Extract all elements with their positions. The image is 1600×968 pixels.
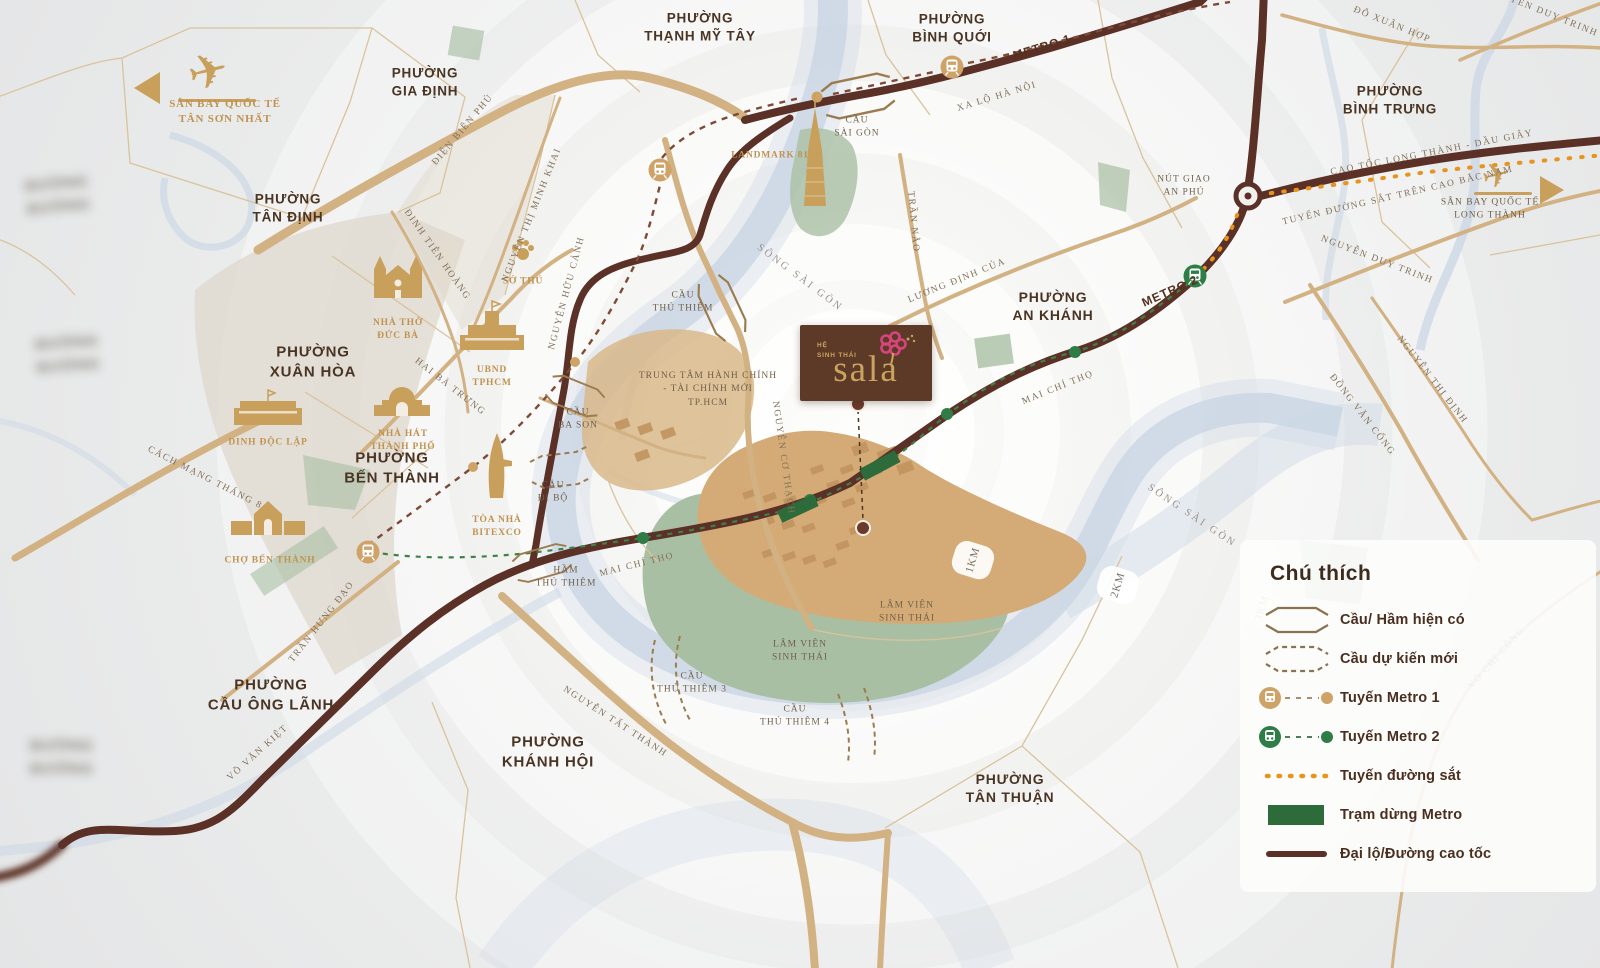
- landmark-label-nha-hat-thanh-pho: NHÀ HÁTTHÀNH PHỐ: [371, 428, 436, 454]
- metro2-line-icon: [1254, 723, 1340, 751]
- road-label-nguyen-duy-trinh-2: NGUYỄN DUY TRINH: [1485, 0, 1600, 39]
- road-label-mai-chi-tho-1: MAI CHÍ THỌ: [599, 551, 676, 579]
- legend-card: Chú thích Cầu/ Hầm hiện có Cầu dự kiến m…: [1240, 540, 1596, 892]
- legend-item-metro-station: Trạm dừng Metro: [1240, 795, 1596, 834]
- district-label-gia-dinh: PHƯỜNGGIA ĐỊNH: [392, 64, 459, 99]
- road-label-nguyen-thi-minh-khai: NGUYỄN THỊ MINH KHAI: [500, 146, 563, 283]
- river-label-song-sai-gon-1: SÔNG SÀI GÒN: [755, 242, 845, 314]
- ring-label-ring-1km: 1KM: [949, 538, 997, 582]
- district-label-tan-dinh: PHƯỜNGTÂN ĐỊNH: [253, 190, 324, 225]
- district-label-tan-thuan: PHƯỜNGTÂN THUẬN: [966, 770, 1055, 806]
- bridge-planned-icon: [1254, 641, 1340, 677]
- landmark-label-landmark-81: LANDMARK 81: [731, 150, 809, 163]
- road-label-xa-lo-ha-noi: XA LỘ HÀ NỘI: [956, 80, 1038, 114]
- road-label-dong-van-cong: ĐỒNG VĂN CỐNG: [1327, 372, 1397, 457]
- landmark-label-dinh-doc-lap: DINH ĐỘC LẬP: [228, 437, 307, 450]
- road-label-nguyen-tat-thanh: NGUYỄN TẤT THÀNH: [561, 685, 668, 760]
- place-label-trung-tam-hanh-chinh: TRUNG TÂM HÀNH CHÍNH- TÀI CHÍNH MỚITP.HC…: [639, 370, 777, 410]
- district-label-xuan-hoa: PHƯỜNGXUÂN HÒA: [270, 343, 356, 382]
- road-label-mai-chi-tho-2: MAI CHÍ THỌ: [1021, 369, 1096, 407]
- road-label-vo-van-kiet: VÕ VĂN KIỆT: [226, 723, 291, 783]
- metro-line-label-metro-2: METRO 2: [1140, 272, 1201, 309]
- road-label-dinh-tien-hoang: ĐINH TIÊN HOÀNG: [402, 208, 472, 302]
- road-label-luong-dinh-cua: LƯƠNG ĐỊNH CỦA: [907, 257, 1008, 306]
- river-label-song-sai-gon-2: SÔNG SÀI GÒN: [1146, 482, 1239, 550]
- place-label-san-bay-long-thanh: SÂN BAY QUỐC TẾLONG THÀNH: [1441, 197, 1539, 224]
- road-label-cach-mang-thang-8: CÁCH MẠNG THÁNG 8: [146, 445, 264, 512]
- ring-label-ring-2km: 2KM: [1094, 563, 1142, 607]
- landmark-label-nha-tho-duc-ba: NHÀ THỜĐỨC BÀ: [373, 317, 423, 343]
- road-label-nguyen-thi-dinh: NGUYỄN THỊ ĐỊNH: [1395, 334, 1470, 425]
- district-label-binh-quoi: PHƯỜNGBÌNH QUỚI: [912, 10, 991, 45]
- road-label-tran-nao: TRẦN NÃO: [905, 191, 920, 253]
- place-label-ham-thu-thiem: HẦMTHỦ THIÊM: [536, 565, 597, 592]
- sala-location-map: ✈ ✈ PHƯỜNGTHẠNH MỸ TÂYPHƯỜNGBÌNH QUỚIPHƯ…: [0, 0, 1600, 968]
- district-label-thanh-my-tay: PHƯỜNGTHẠNH MỸ TÂY: [644, 9, 756, 44]
- metro-line-label-metro-1: METRO 1: [1011, 31, 1073, 62]
- metro1-line-icon: [1254, 684, 1340, 712]
- road-label-duong-sat-tren-cao: TUYẾN ĐƯỜNG SẮT TRÊN CAO BẮC NAM: [1282, 165, 1515, 228]
- legend-item-highway: Đại lộ/Đường cao tốc: [1240, 834, 1596, 873]
- place-label-nut-giao-an-phu: NÚT GIAOAN PHÚ: [1157, 174, 1210, 201]
- place-label-cau-thu-thiem: CẦUTHỦ THIÊM: [653, 290, 714, 317]
- road-label-dien-bien-phu: ĐIỆN BIÊN PHỦ: [430, 93, 495, 168]
- blurred-label-blur-2: ĐƯỜNGĐƯỜNG: [35, 330, 102, 379]
- landmark-label-so-thu: SỞ THÚ: [503, 276, 543, 289]
- blurred-label-blur-1: ĐƯỜNGĐƯỜNG: [24, 171, 91, 221]
- road-label-do-xuan-hop: ĐỖ XUÂN HỢP: [1352, 5, 1432, 45]
- place-label-cau-ba-son: CẦUBA SON: [558, 407, 598, 434]
- district-label-binh-trung: PHƯỜNGBÌNH TRƯNG: [1343, 82, 1437, 117]
- legend-item-metro2: Tuyến Metro 2: [1240, 717, 1596, 756]
- sala-logo: HỆSINH THÁI sala: [800, 325, 932, 401]
- landmark-label-ubnd-tphcm: UBNDTPHCM: [472, 364, 511, 390]
- place-label-lam-vien-sinh-thai-2: LÂM VIÊNSINH THÁI: [879, 600, 935, 627]
- place-label-cau-di-bo: CẦUĐI BỘ: [538, 480, 569, 507]
- legend-item-metro1: Tuyến Metro 1: [1240, 678, 1596, 717]
- legend-item-bridge-planned: Cầu dự kiến mới: [1240, 639, 1596, 678]
- district-label-khanh-hoi: PHƯỜNGKHÁNH HỘI: [502, 733, 594, 772]
- place-label-lam-vien-sinh-thai-1: LÂM VIÊNSINH THÁI: [772, 639, 828, 666]
- bridge-existing-icon: [1254, 602, 1340, 638]
- road-label-nguyen-duy-trinh-1: NGUYỄN DUY TRINH: [1319, 234, 1434, 286]
- sala-flower-icon: [870, 331, 918, 365]
- landmark-label-toa-nha-bitexco: TÒA NHÀBITEXCO: [472, 514, 521, 540]
- railway-dotted-icon: [1254, 770, 1340, 782]
- landmark-label-san-bay-tan-son-nhat: SÂN BAY QUỐC TẾTÂN SƠN NHẤT: [169, 97, 281, 127]
- place-label-cau-sai-gon: CẦUSÀI GÒN: [834, 115, 879, 142]
- highway-swatch: [1254, 848, 1340, 860]
- road-label-hai-ba-trung: HAI BÀ TRƯNG: [413, 356, 488, 418]
- place-label-cau-thu-thiem-4: CẦUTHỦ THIÊM 4: [760, 704, 830, 731]
- road-label-nguyen-huu-canh: NGUYỄN HỮU CẢNH: [547, 235, 587, 350]
- legend-item-railway: Tuyến đường sắt: [1240, 756, 1596, 795]
- metro-station-swatch: [1254, 803, 1340, 827]
- road-label-tran-hung-dao: TRẦN HƯNG ĐẠO: [287, 580, 356, 665]
- district-label-an-khanh: PHƯỜNGAN KHÁNH: [1012, 288, 1093, 324]
- road-label-cao-toc-long-thanh: CAO TỐC LONG THÀNH - DẦU GIÂY: [1330, 128, 1535, 177]
- place-label-cau-thu-thiem-3: CẦUTHỦ THIÊM 3: [657, 671, 727, 698]
- district-label-cau-ong-lanh: PHƯỜNGCẦU ÔNG LÃNH: [208, 676, 334, 715]
- district-label-ben-thanh: PHƯỜNGBẾN THÀNH: [344, 449, 440, 488]
- blurred-label-blur-3: ĐƯỜNGĐƯỜNG: [30, 736, 94, 781]
- road-label-nguyen-co-thach: NGUYỄN CƠ THẠCH: [770, 401, 796, 516]
- legend-title: Chú thích: [1270, 562, 1596, 586]
- legend-item-bridge-existing: Cầu/ Hầm hiện có: [1240, 600, 1596, 639]
- landmark-label-cho-ben-thanh: CHỢ BẾN THÀNH: [225, 555, 316, 568]
